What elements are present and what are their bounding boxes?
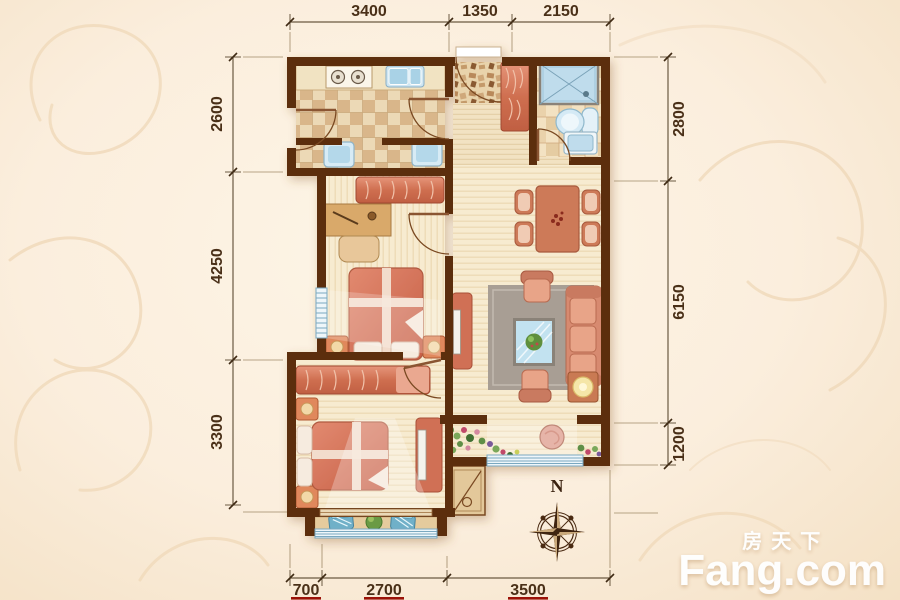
desk-icon	[325, 204, 391, 236]
lamp-table-icon	[568, 372, 598, 402]
dim-label-top-1: 3400	[351, 3, 387, 20]
shoe-cabinet-icon	[501, 62, 529, 131]
dim-label-right-3: 1200	[671, 426, 688, 462]
fang-watermark-en: Fang.com	[678, 548, 886, 594]
wardrobe-icon	[296, 366, 430, 394]
label-underline	[508, 597, 548, 600]
nightstand-icon	[296, 486, 318, 508]
dim-label-right-2: 6150	[671, 284, 688, 320]
dim-label-bottom-3: 3500	[510, 582, 546, 599]
coffee-table-icon	[513, 318, 555, 366]
bedroom-bottom	[296, 366, 442, 508]
balcony-railing-icon	[315, 529, 437, 538]
washing-machine-icon	[324, 142, 354, 167]
dim-label-top-2: 1350	[462, 3, 498, 20]
floorplan-page: 3400 1350 2150 2600 4250 3300 2800 6150 …	[0, 0, 900, 600]
compass-north-label: N	[551, 476, 564, 496]
dim-label-left-2: 4250	[209, 248, 226, 284]
nightstand-icon	[296, 398, 318, 420]
compass-rose-icon: N	[529, 476, 585, 562]
label-underline	[291, 597, 321, 600]
sofa-icon	[566, 286, 602, 386]
balcony-slider-icon	[320, 509, 432, 516]
dim-label-right-1: 2800	[671, 101, 688, 137]
tv-cabinet-icon	[416, 418, 442, 492]
dim-label-top-3: 2150	[543, 3, 579, 20]
floorplan-canvas: 3400 1350 2150 2600 4250 3300 2800 6150 …	[0, 0, 900, 600]
ac-unit-icon	[450, 466, 485, 515]
bay-window-icon	[487, 455, 583, 466]
dim-label-bottom-1: 700	[293, 582, 320, 599]
armchair-icon	[519, 370, 551, 402]
dining-table-icon	[536, 186, 579, 252]
kitchen-sink-icon	[386, 66, 424, 87]
dim-label-left-3: 3300	[209, 414, 226, 450]
dim-label-left-1: 2600	[209, 96, 226, 132]
dim-label-bottom-2: 2700	[366, 582, 402, 599]
fang-watermark: 房天下 Fang.com	[678, 525, 886, 594]
wardrobe-icon	[356, 177, 444, 203]
tv-cabinet-icon	[452, 293, 472, 369]
bedroom-top-window-icon	[316, 288, 327, 338]
shower-icon	[540, 64, 598, 104]
armchair-icon	[521, 271, 553, 302]
dimension-top: 3400 1350 2150	[286, 3, 614, 52]
pouf-icon	[540, 425, 564, 449]
desk-chair-icon	[339, 236, 379, 262]
floor-plan	[287, 47, 610, 538]
label-underline	[364, 597, 404, 600]
entry-floor	[455, 62, 501, 103]
dimension-right: 2800 6150 1200	[614, 53, 688, 513]
gas-stove-icon	[326, 66, 372, 88]
dimension-left: 2600 4250 3300	[209, 53, 287, 512]
